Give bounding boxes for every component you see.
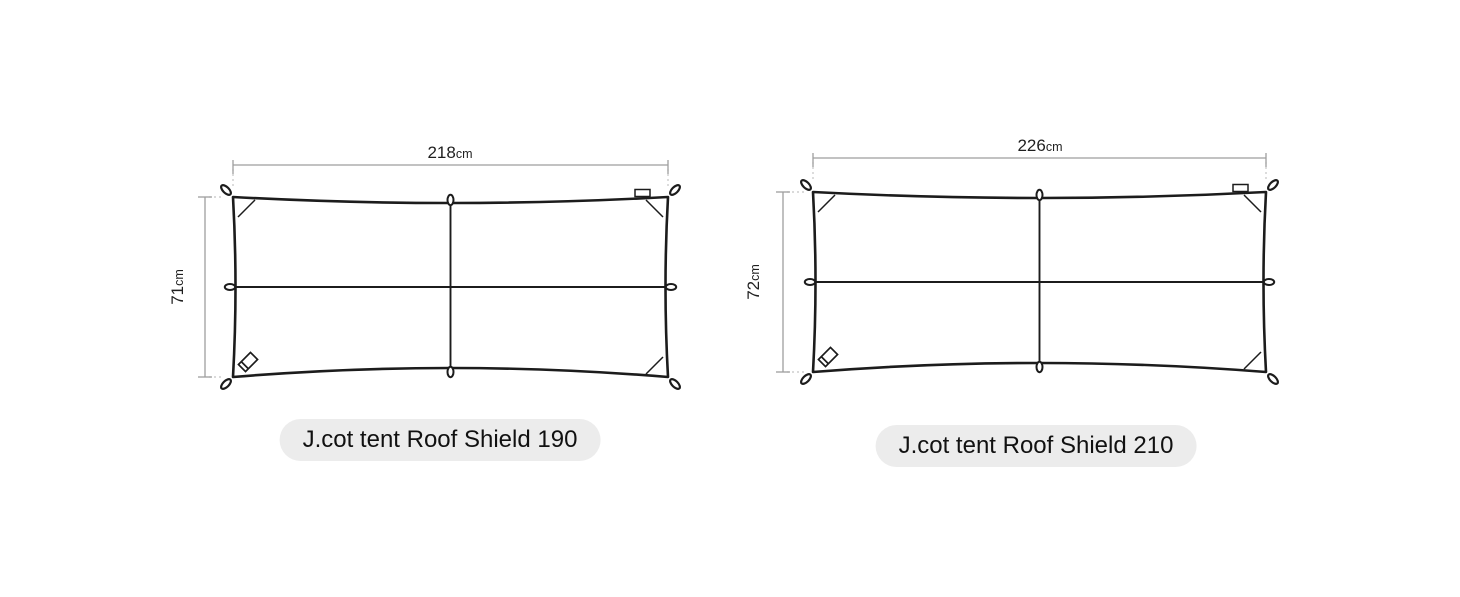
- seam-lines: [816, 198, 1263, 363]
- height-dimension-label: 72cm: [744, 264, 763, 300]
- height-dimension-label: 71cm: [168, 269, 187, 305]
- page: 218cm 71cm 226cm 72cm J.cot tent Roof Sh…: [0, 0, 1460, 597]
- caption-roof-shield-190: J.cot tent Roof Shield 190: [280, 419, 601, 461]
- width-dimension-label: 218cm: [427, 143, 472, 162]
- caption-roof-shield-210: J.cot tent Roof Shield 210: [876, 425, 1197, 467]
- logo-patch: [238, 352, 257, 371]
- width-dimension-line: [813, 153, 1266, 167]
- diagram-roof-shield-190: 218cm 71cm: [150, 130, 695, 410]
- diagram-roof-shield-210: 226cm 72cm: [730, 125, 1290, 405]
- hang-tag: [1233, 185, 1248, 192]
- height-dimension-line: [776, 192, 790, 372]
- height-dimension-line: [198, 197, 212, 377]
- logo-patch: [818, 347, 837, 366]
- width-dimension-line: [233, 160, 668, 174]
- hang-tag: [635, 190, 650, 197]
- seam-lines: [236, 203, 665, 368]
- width-dimension-label: 226cm: [1017, 136, 1062, 155]
